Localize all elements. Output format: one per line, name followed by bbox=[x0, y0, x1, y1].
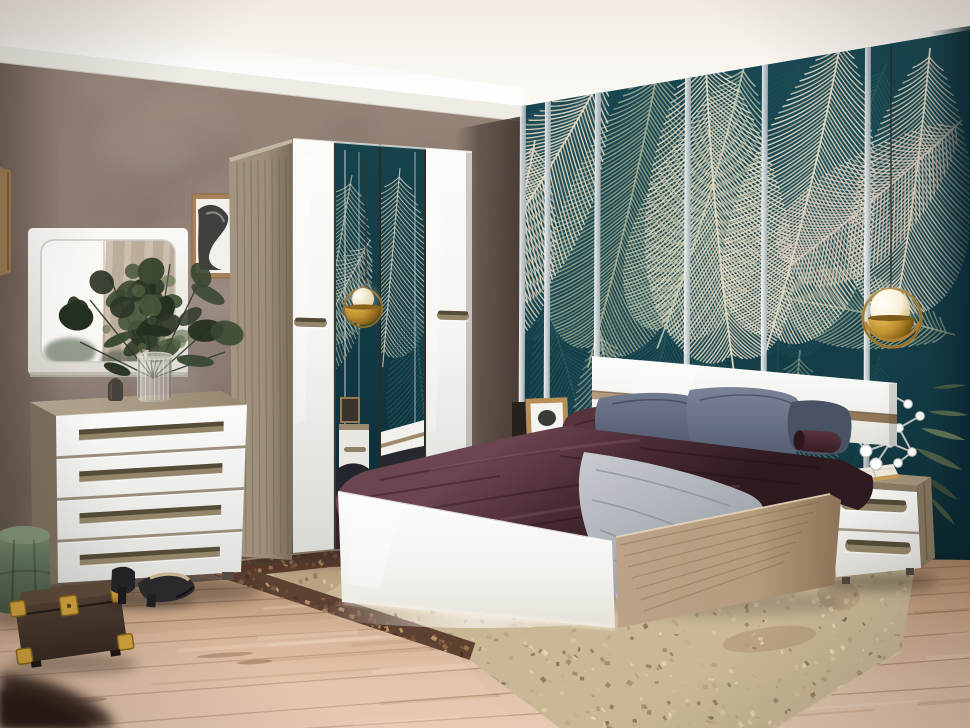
vignette bbox=[0, 0, 970, 728]
scene-canvas bbox=[0, 0, 970, 728]
bedroom-scene bbox=[0, 0, 970, 728]
